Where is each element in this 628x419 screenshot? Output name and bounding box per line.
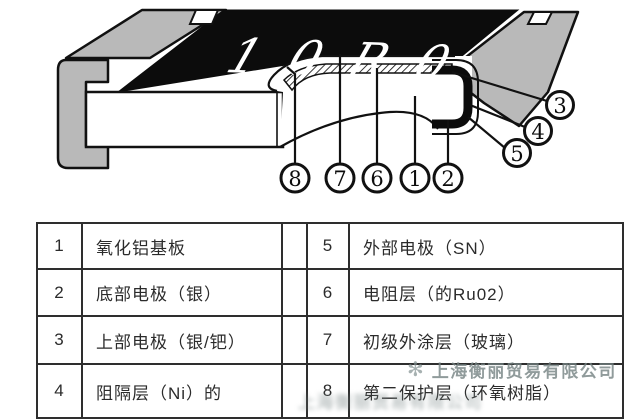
legend-label: 氧化铝基板: [82, 223, 282, 269]
watermark: ✻ 上海衡丽贸易有限公司: [407, 357, 617, 382]
watermark-text: 上海衡丽贸易有限公司: [432, 357, 617, 382]
resistor-marking: 10R0: [220, 28, 488, 92]
legend-no: 3: [37, 316, 82, 364]
resistor-cutaway-diagram: 10R0 8 7 6 1 2 3 4 5: [0, 0, 628, 218]
callout-number-2: 2: [441, 167, 454, 191]
callout-number-7: 7: [333, 167, 346, 191]
legend-spacer: [282, 223, 307, 269]
callout-number-4: 4: [531, 120, 544, 144]
legend-no: 1: [37, 223, 82, 269]
legend-spacer: [282, 269, 307, 316]
legend-spacer: [282, 316, 307, 364]
watermark-flower-icon: ✻: [407, 357, 424, 382]
left-cap-notch: [190, 10, 218, 24]
legend-no: 2: [37, 269, 82, 316]
callout-number-5: 5: [510, 142, 523, 166]
legend-label: 阻隔层（Ni）的: [82, 364, 282, 418]
leader-line-5: [468, 117, 505, 148]
legend-no: 7: [307, 316, 349, 364]
legend-no: 5: [307, 223, 349, 269]
body-front-face: [86, 92, 283, 147]
legend-label: 底部电极（银）: [82, 269, 282, 316]
callout-number-1: 1: [408, 167, 421, 191]
legend-label: 上部电极（银/钯）: [82, 316, 282, 364]
legend-row-1: 1 氧化铝基板 5 外部电极（SN）: [37, 223, 623, 269]
legend-row-2: 2 底部电极（银） 6 电阻层（的Ru02）: [37, 269, 623, 316]
watermark-faint: 上海衡丽贸易有限公司: [298, 388, 483, 413]
chip-resistor-structure-page: 10R0 8 7 6 1 2 3 4 5: [0, 0, 628, 405]
callout-number-8: 8: [288, 167, 301, 191]
legend-no: 4: [37, 364, 82, 418]
legend-no: 6: [307, 269, 349, 316]
legend-label: 外部电极（SN）: [349, 223, 623, 269]
callout-number-3: 3: [553, 94, 566, 118]
legend-label: 电阻层（的Ru02）: [349, 269, 623, 316]
callout-number-6: 6: [370, 167, 383, 191]
